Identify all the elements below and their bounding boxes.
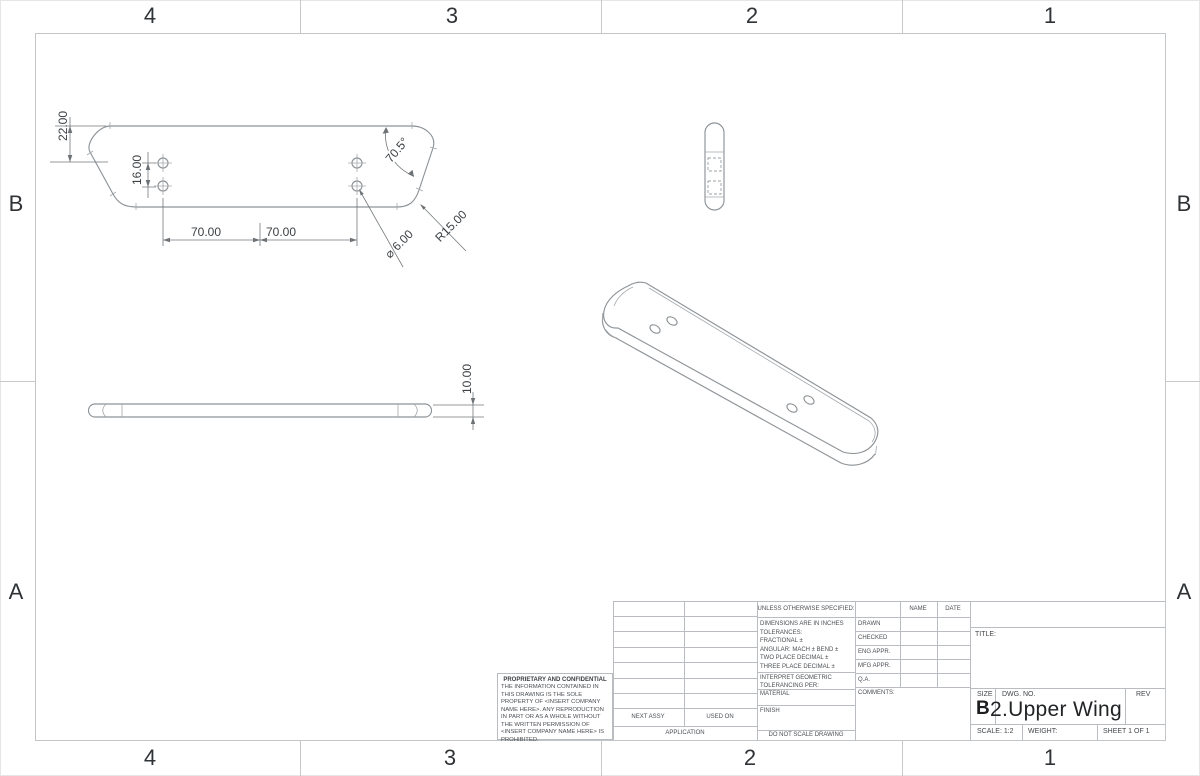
end-view	[705, 123, 724, 210]
engineering-drawing-sheet: { "zones": { "top": ["4", "3", "2", "1"]…	[0, 0, 1200, 776]
tolerance-line: TOLERANCES:	[760, 629, 853, 638]
approval-row-qa: Q.A.	[858, 677, 870, 683]
size-value: B	[976, 699, 990, 718]
approval-row-mfg-appr: MFG APPR.	[858, 663, 891, 669]
dim-label-22: 22.00	[57, 111, 69, 141]
size-label: SIZE	[977, 691, 993, 698]
tolerance-line: DIMENSIONS ARE IN INCHES	[760, 620, 853, 629]
dwg-no-label: DWG. NO.	[1002, 691, 1035, 698]
finish-label: FINISH	[760, 708, 780, 714]
tolerance-line: ANGULAR: MACH ± BEND ±	[760, 646, 853, 655]
proprietary-body: THE INFORMATION CONTAINED IN THIS DRAWIN…	[501, 684, 609, 744]
approval-row-drawn: DRAWN	[858, 621, 880, 627]
interpret-geometric-label: INTERPRET GEOMETRIC TOLERANCING PER:	[760, 675, 850, 690]
tolerance-line: THREE PLACE DECIMAL ±	[760, 663, 853, 672]
sheet-label: SHEET 1 OF 1	[1103, 728, 1150, 735]
weight-label: WEIGHT:	[1028, 728, 1057, 735]
comments-label: COMMENTS:	[858, 690, 895, 696]
name-header: NAME	[909, 606, 926, 612]
date-header: DATE	[945, 606, 961, 612]
tolerance-line: FRACTIONAL ±	[760, 637, 853, 646]
drawing-views-svg	[0, 0, 1200, 776]
front-view	[89, 392, 485, 430]
unless-otherwise-label: UNLESS OTHERWISE SPECIFIED:	[758, 606, 855, 612]
approval-row-eng-appr: ENG APPR.	[858, 649, 890, 655]
dwg-no-value: 2.Upper Wing	[990, 699, 1122, 720]
dim-label-70-left: 70.00	[191, 226, 221, 238]
dim-label-10: 10.00	[461, 364, 473, 394]
material-label: MATERIAL	[760, 691, 790, 697]
used-on-label: USED ON	[706, 714, 733, 720]
scale-value: SCALE: 1:2	[977, 728, 1014, 735]
dim-label-70-right: 70.00	[266, 226, 296, 238]
title-label: TITLE:	[975, 631, 996, 638]
proprietary-heading: PROPRIETARY AND CONFIDENTIAL	[501, 676, 609, 684]
isometric-view	[603, 282, 878, 465]
next-assy-label: NEXT ASSY	[631, 714, 664, 720]
dim-label-16: 16.00	[131, 155, 143, 185]
tolerance-line: TWO PLACE DECIMAL ±	[760, 654, 853, 663]
do-not-scale-label: DO NOT SCALE DRAWING	[768, 732, 843, 738]
rev-label: REV	[1136, 691, 1150, 698]
approval-row-checked: CHECKED	[858, 635, 887, 641]
proprietary-notice: PROPRIETARY AND CONFIDENTIAL THE INFORMA…	[497, 673, 613, 740]
application-label: APPLICATION	[665, 730, 704, 736]
